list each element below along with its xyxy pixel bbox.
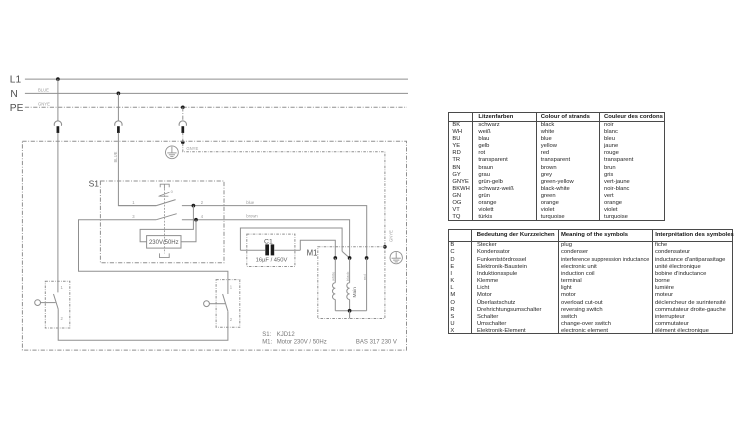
svg-text:GNYE: GNYE <box>389 230 394 242</box>
svg-text:white: white <box>331 271 336 281</box>
svg-text:GNYE: GNYE <box>38 101 50 106</box>
svg-text:230V/50Hz: 230V/50Hz <box>149 240 179 246</box>
svg-text:BAS 317 230 V: BAS 317 230 V <box>356 340 397 346</box>
svg-text:M1: M1 <box>307 249 318 258</box>
svg-text:1: 1 <box>61 285 64 290</box>
svg-text:2: 2 <box>201 200 204 205</box>
svg-text:1: 1 <box>230 285 233 290</box>
svg-text:2: 2 <box>230 317 233 322</box>
svg-text:0: 0 <box>171 189 174 194</box>
svg-text:blue: blue <box>246 200 255 205</box>
svg-text:16µF / 450V: 16µF / 450V <box>256 257 288 263</box>
svg-text:S1: S1 <box>89 178 100 188</box>
svg-text:BLUE: BLUE <box>113 151 118 162</box>
svg-text:4: 4 <box>201 214 204 219</box>
svg-text:BLUE: BLUE <box>38 88 49 93</box>
svg-text:Main: Main <box>352 287 358 298</box>
svg-text:black: black <box>345 272 350 281</box>
svg-text:N: N <box>10 89 17 100</box>
svg-text:M1:: M1: <box>262 340 272 346</box>
svg-text:L1: L1 <box>10 75 22 86</box>
svg-text:3: 3 <box>132 214 135 219</box>
svg-text:S1:: S1: <box>262 332 271 338</box>
svg-text:1: 1 <box>132 200 135 205</box>
svg-text:brown: brown <box>246 213 258 218</box>
svg-text:PE: PE <box>10 103 24 114</box>
svg-text:GNYE: GNYE <box>186 146 198 151</box>
svg-text:Motor 230V / 50Hz: Motor 230V / 50Hz <box>277 340 327 346</box>
svg-text:KJD12: KJD12 <box>277 332 296 338</box>
svg-text:red: red <box>362 274 367 280</box>
svg-text:2: 2 <box>61 316 64 321</box>
